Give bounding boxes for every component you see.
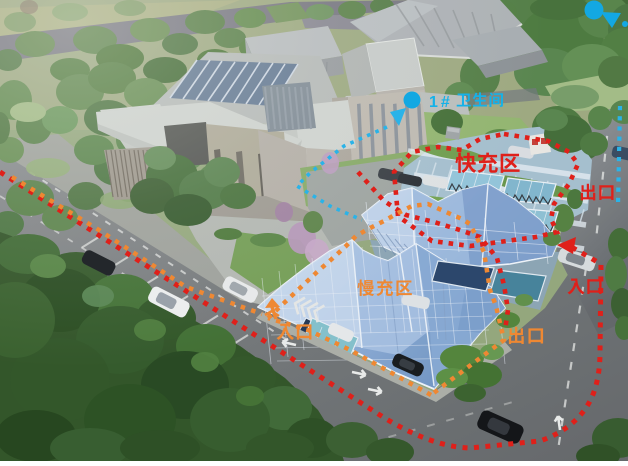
svg-text:1#: 1# (429, 94, 453, 111)
